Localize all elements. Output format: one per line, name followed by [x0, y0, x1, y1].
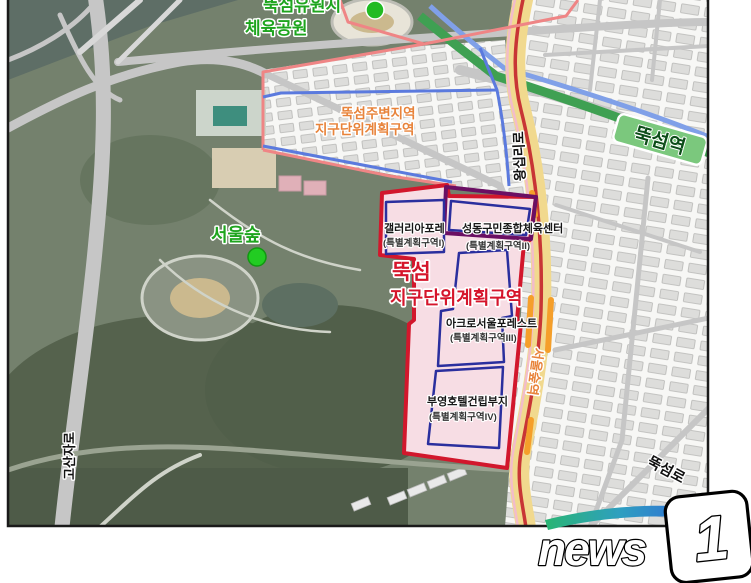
pond — [262, 283, 338, 327]
park-label-line1: 뚝섬유원지 — [263, 0, 341, 15]
seoul-forest-marker-icon — [248, 248, 266, 266]
zone4-sub: (특별계획구역IV) — [429, 411, 497, 423]
seoul-forest-label: 서울숲 — [211, 225, 261, 245]
surrounding-zone-label-line1: 뚝섬주변지역 — [341, 105, 416, 121]
road-label-gosanja: 고산자로 — [62, 432, 77, 480]
district-plan-map: 뚝섬역 뚝섬유원지 체육공원 뚝섬주변지역 지구단위계획구역 서울숲 뚝섬 지구… — [0, 0, 751, 583]
district-title-line2: 지구단위계획구역 — [390, 288, 522, 308]
news1-brand-text: news — [538, 523, 646, 575]
zone3-name: 아크로서울포레스트 — [446, 316, 537, 330]
zone3-sub: (특별계획구역III) — [450, 332, 517, 344]
zone2-name: 성동구민종합체육센터 — [462, 221, 563, 235]
zone1-name: 갤러리아포레 — [384, 221, 445, 235]
pool — [213, 106, 247, 126]
surrounding-zone-label-line2: 지구단위계획구역 — [315, 121, 414, 137]
map-canvas: 뚝섬역 뚝섬유원지 체육공원 뚝섬주변지역 지구단위계획구역 서울숲 뚝섬 지구… — [0, 0, 709, 545]
park-label-line2: 체육공원 — [245, 19, 308, 38]
oval-arena-field — [170, 278, 230, 318]
news1-brand-number: 1 — [691, 503, 733, 575]
news1-number-tile: 1 — [664, 490, 751, 583]
district-title-line1: 뚝섬 — [392, 261, 431, 284]
zone4-name: 부영호텔건립부지 — [427, 394, 508, 408]
map-figure: 뚝섬역 뚝섬유원지 체육공원 뚝섬주변지역 지구단위계획구역 서울숲 뚝섬 지구… — [0, 0, 751, 583]
park-marker-icon — [366, 1, 384, 19]
zone2-sub: (특별계획구역II) — [466, 240, 530, 252]
road-label-wangsimni: 왕십리로 — [511, 130, 528, 181]
zone1-sub: (특별계획구역I) — [383, 237, 444, 249]
field — [212, 148, 276, 188]
